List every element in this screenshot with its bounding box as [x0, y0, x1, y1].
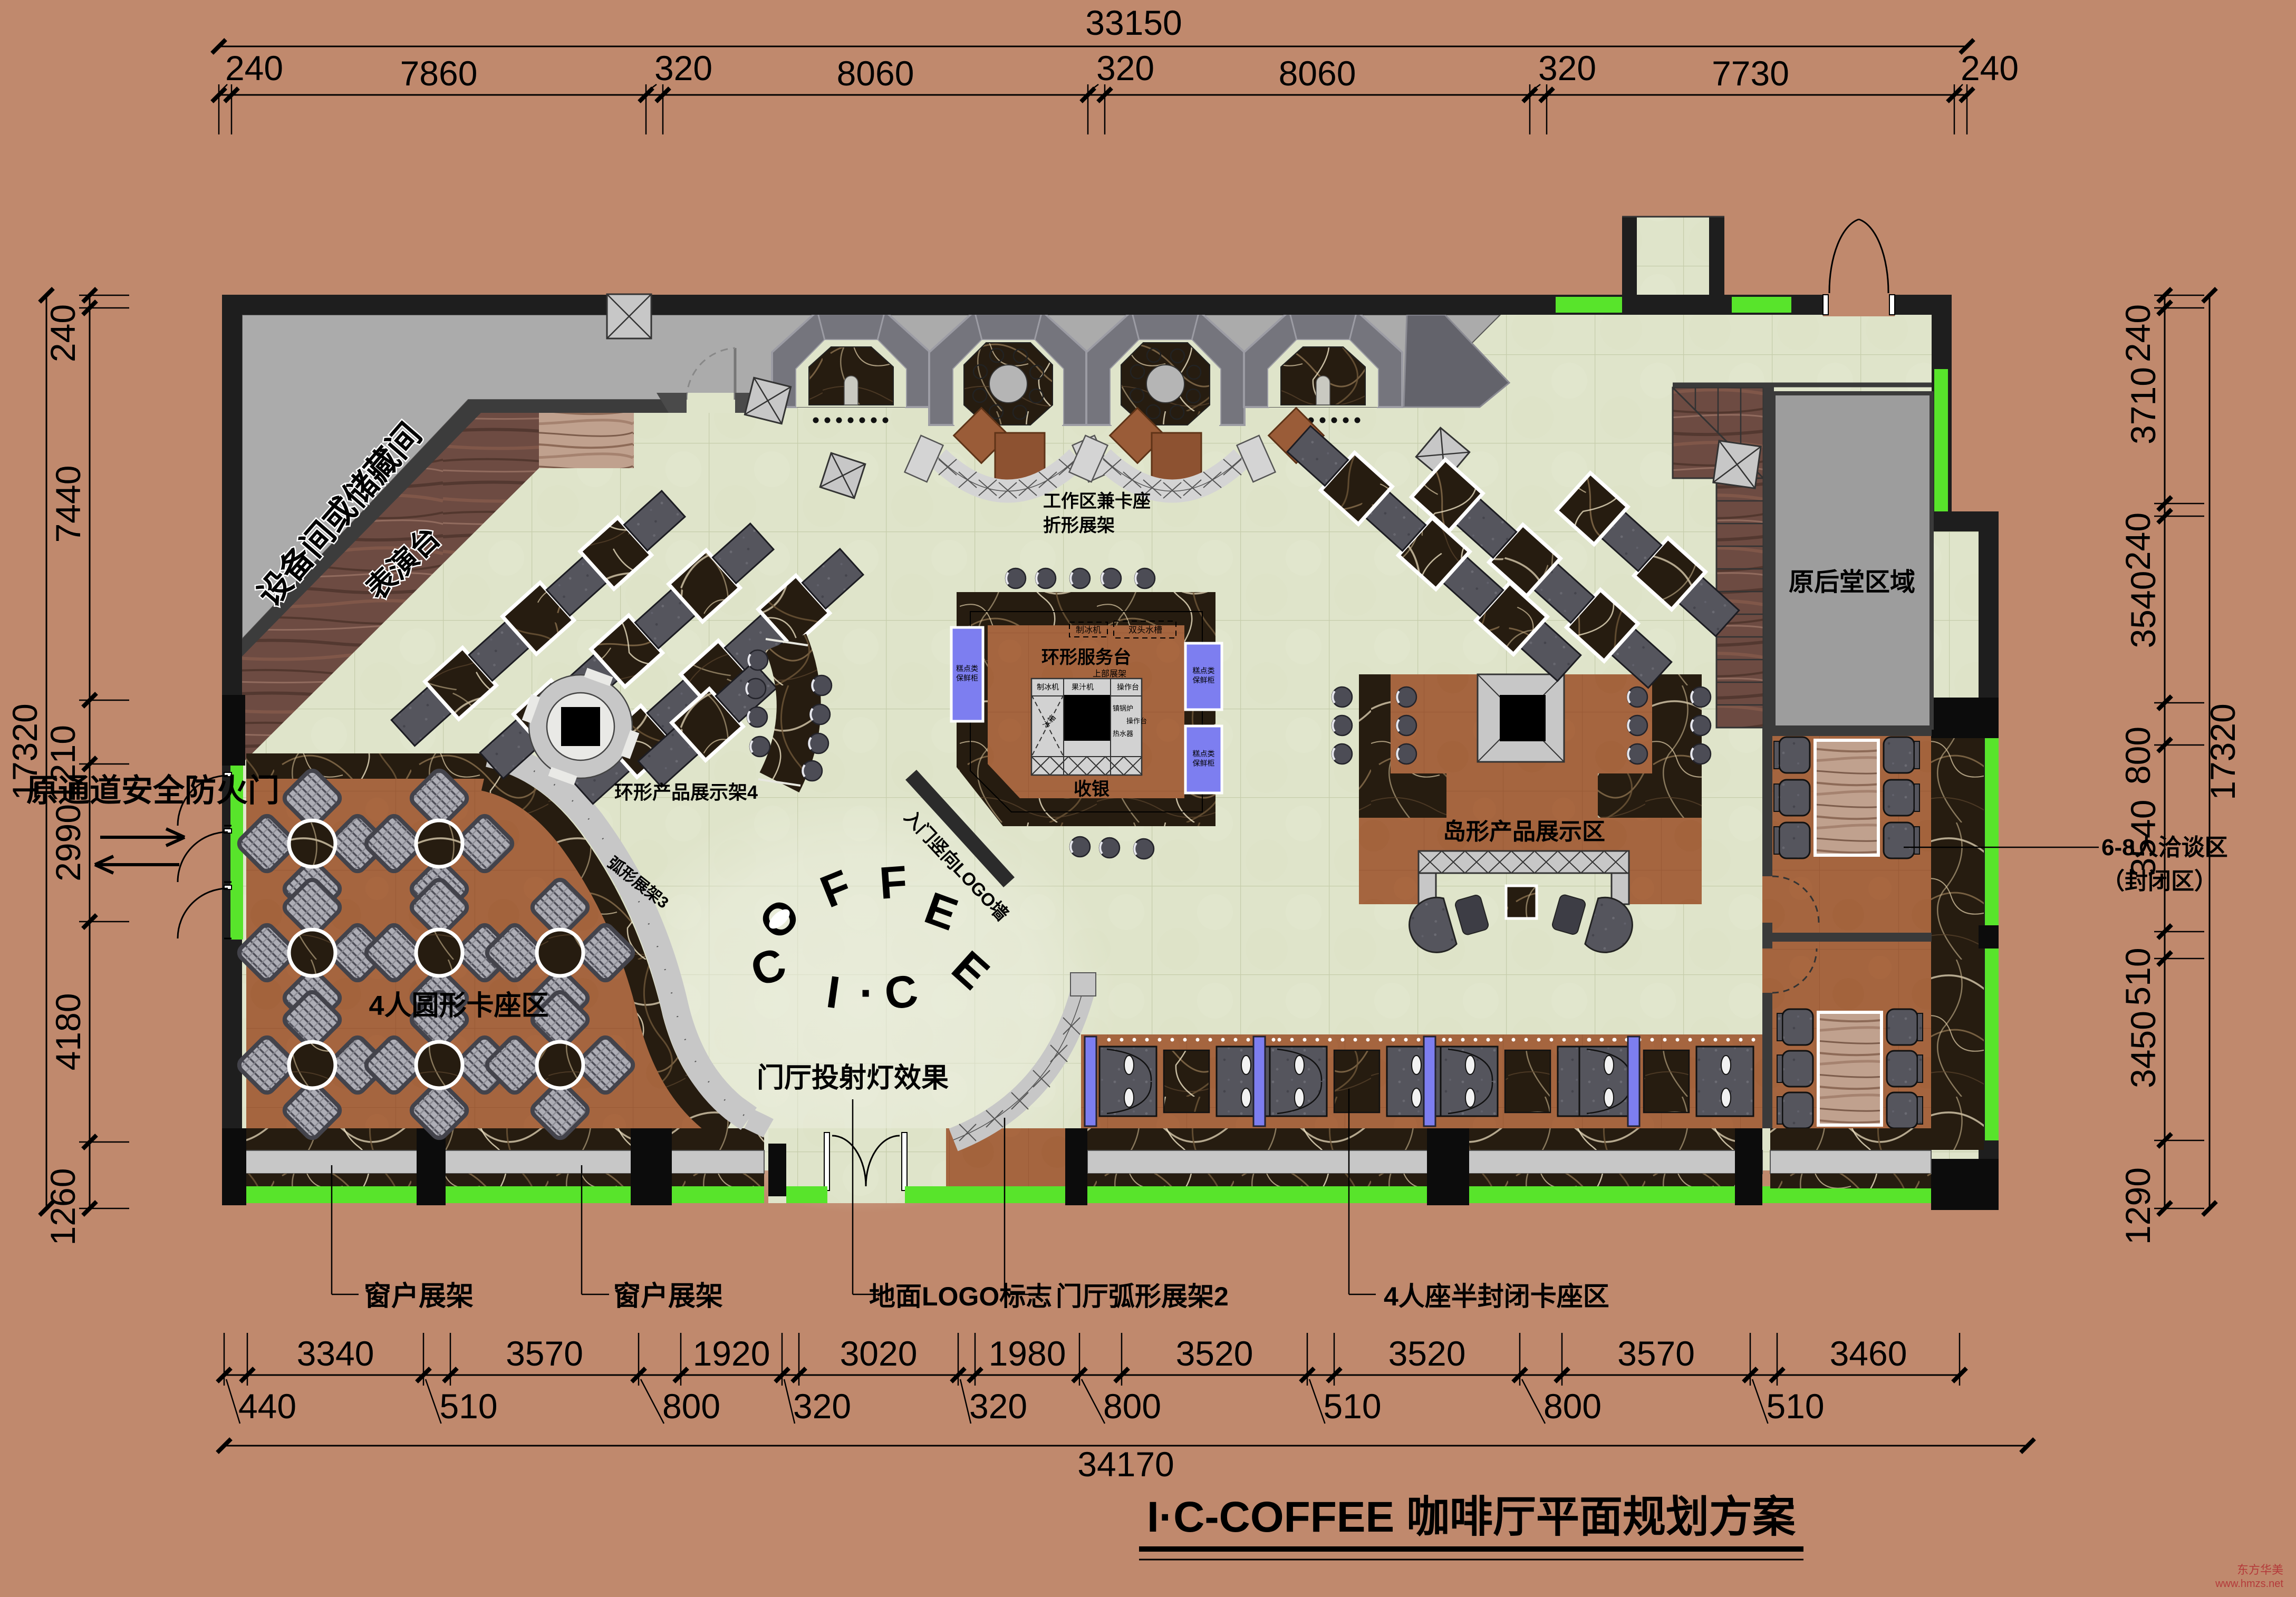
- svg-text:8060: 8060: [837, 54, 914, 93]
- svg-text:I·C-COFFEE 咖啡厅平面规划方案: I·C-COFFEE 咖啡厅平面规划方案: [1147, 1493, 1796, 1541]
- svg-text:510: 510: [439, 1387, 497, 1426]
- svg-text:环形产品展示架4: 环形产品展示架4: [614, 781, 758, 803]
- svg-text:岛形产品展示区: 岛形产品展示区: [1443, 819, 1605, 845]
- svg-text:320: 320: [654, 49, 712, 88]
- svg-text:·: ·: [860, 968, 875, 1019]
- svg-text:240: 240: [2118, 512, 2157, 570]
- svg-text:3710: 3710: [2124, 367, 2163, 444]
- svg-text:原后堂区域: 原后堂区域: [1789, 568, 1915, 596]
- svg-text:800: 800: [1543, 1387, 1602, 1426]
- svg-text:操作台: 操作台: [1126, 717, 1147, 725]
- svg-text:C: C: [882, 965, 921, 1020]
- svg-text:33150: 33150: [1085, 3, 1182, 42]
- svg-text:3570: 3570: [1617, 1334, 1695, 1373]
- svg-text:7730: 7730: [1712, 54, 1789, 93]
- svg-text:34170: 34170: [1077, 1445, 1174, 1484]
- svg-text:800: 800: [2118, 727, 2157, 785]
- svg-text:240: 240: [1961, 49, 2019, 88]
- svg-text:糕点类: 糕点类: [1193, 750, 1215, 758]
- svg-text:510: 510: [2118, 947, 2157, 1005]
- svg-text:17320: 17320: [2203, 703, 2242, 800]
- svg-text:糕点类: 糕点类: [1193, 666, 1215, 675]
- svg-text:3570: 3570: [506, 1334, 583, 1373]
- svg-text:工作区兼卡座: 工作区兼卡座: [1043, 491, 1151, 511]
- svg-text:3460: 3460: [1830, 1334, 1907, 1373]
- svg-text:环形服务台: 环形服务台: [1041, 647, 1131, 667]
- svg-text:窗户展架: 窗户展架: [613, 1281, 723, 1312]
- svg-text:3540: 3540: [2124, 571, 2163, 649]
- svg-text:4人座半封闭卡座区: 4人座半封闭卡座区: [1384, 1282, 1609, 1311]
- svg-text:（封闭区）: （封闭区）: [2101, 868, 2217, 894]
- svg-text:上部展架: 上部展架: [1093, 669, 1126, 679]
- svg-text:折形展架: 折形展架: [1043, 516, 1115, 536]
- svg-text:原通道安全防火门: 原通道安全防火门: [26, 773, 279, 808]
- svg-text:www.hmzs.net: www.hmzs.net: [2215, 1578, 2283, 1590]
- svg-text:门厅投射灯效果: 门厅投射灯效果: [757, 1063, 949, 1093]
- svg-text:地面LOGO标志: 地面LOGO标志: [869, 1282, 1052, 1311]
- svg-text:1260: 1260: [43, 1168, 82, 1246]
- svg-text:6-8人洽谈区: 6-8人洽谈区: [2101, 835, 2228, 860]
- svg-text:320: 320: [1538, 49, 1596, 88]
- svg-text:240: 240: [2118, 304, 2157, 362]
- svg-text:320: 320: [1096, 49, 1154, 88]
- svg-text:3520: 3520: [1388, 1334, 1466, 1373]
- svg-text:2990: 2990: [49, 804, 88, 882]
- svg-text:4180: 4180: [49, 993, 88, 1071]
- svg-text:门厅弧形展架2: 门厅弧形展架2: [1056, 1282, 1229, 1311]
- svg-text:保鲜柜: 保鲜柜: [1193, 676, 1215, 684]
- svg-text:操作台: 操作台: [1117, 683, 1139, 691]
- svg-text:热水器: 热水器: [1113, 730, 1133, 738]
- svg-text:240: 240: [43, 304, 82, 362]
- svg-text:800: 800: [662, 1387, 720, 1426]
- svg-text:制冰机: 制冰机: [1076, 625, 1101, 635]
- svg-text:糕点类: 糕点类: [956, 664, 978, 673]
- svg-text:320: 320: [969, 1387, 1027, 1426]
- svg-text:制冰机: 制冰机: [1037, 683, 1059, 691]
- svg-text:3340: 3340: [297, 1334, 374, 1373]
- svg-text:510: 510: [1323, 1387, 1381, 1426]
- svg-text:双头水槽: 双头水槽: [1128, 625, 1162, 635]
- svg-text:7440: 7440: [49, 466, 88, 543]
- svg-text:3520: 3520: [1176, 1334, 1253, 1373]
- svg-text:镇锅炉: 镇锅炉: [1113, 704, 1133, 712]
- svg-text:320: 320: [793, 1387, 851, 1426]
- svg-text:240: 240: [225, 49, 283, 88]
- svg-text:窗户展架: 窗户展架: [364, 1281, 474, 1312]
- svg-text:440: 440: [238, 1387, 296, 1426]
- svg-text:F: F: [877, 856, 909, 908]
- svg-text:1980: 1980: [989, 1334, 1066, 1373]
- svg-text:收银: 收银: [1074, 779, 1110, 799]
- svg-text:3450: 3450: [2124, 1011, 2163, 1088]
- svg-text:1920: 1920: [693, 1334, 770, 1373]
- svg-text:3020: 3020: [840, 1334, 918, 1373]
- svg-text:1290: 1290: [2118, 1167, 2157, 1245]
- svg-text:800: 800: [1103, 1387, 1161, 1426]
- svg-text:东方华美: 东方华美: [2237, 1563, 2283, 1576]
- svg-text:果汁机: 果汁机: [1072, 683, 1094, 691]
- svg-text:510: 510: [1766, 1387, 1824, 1426]
- svg-text:保鲜柜: 保鲜柜: [1193, 759, 1215, 768]
- svg-text:保鲜柜: 保鲜柜: [956, 674, 978, 682]
- svg-text:8060: 8060: [1279, 54, 1356, 93]
- svg-text:7860: 7860: [400, 54, 478, 93]
- svg-text:4人圆形卡座区: 4人圆形卡座区: [369, 991, 549, 1021]
